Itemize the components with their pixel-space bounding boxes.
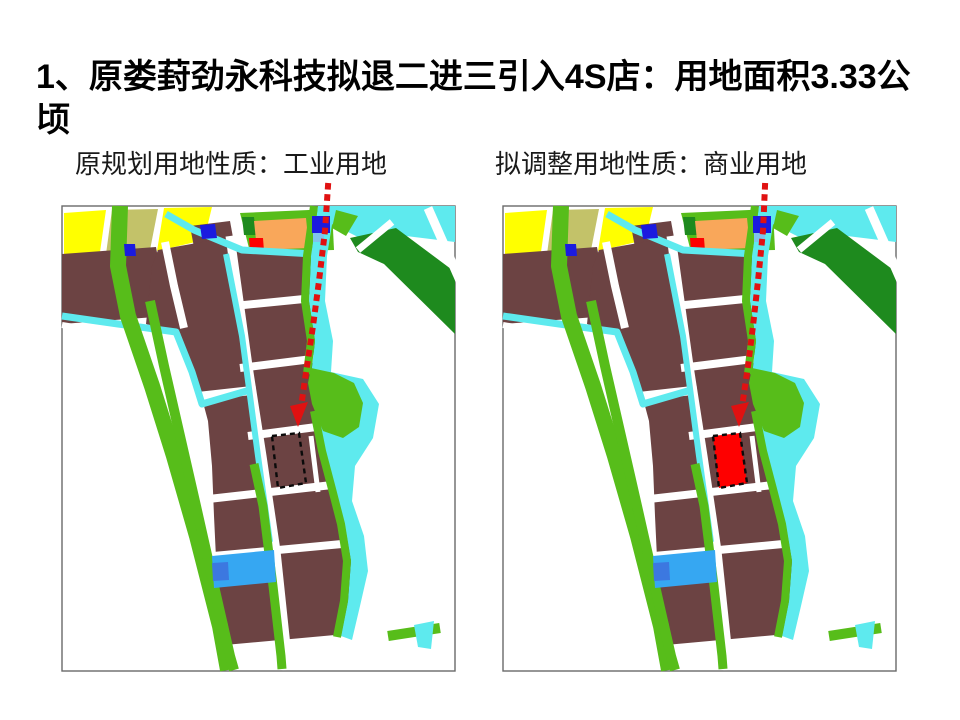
right-map-caption: 拟调整用地性质：商业用地 <box>495 144 807 181</box>
slide-title: 1、原娄葑劲永科技拟退二进三引入4S店：用地面积3.33公顷 <box>36 56 936 141</box>
slide: 1、原娄葑劲永科技拟退二进三引入4S店：用地面积3.33公顷 原规划用地性质：工… <box>0 0 960 720</box>
right-map-adjusted-plan <box>502 181 898 673</box>
left-map-caption: 原规划用地性质：工业用地 <box>75 144 387 181</box>
left-map-original-plan <box>61 181 457 673</box>
